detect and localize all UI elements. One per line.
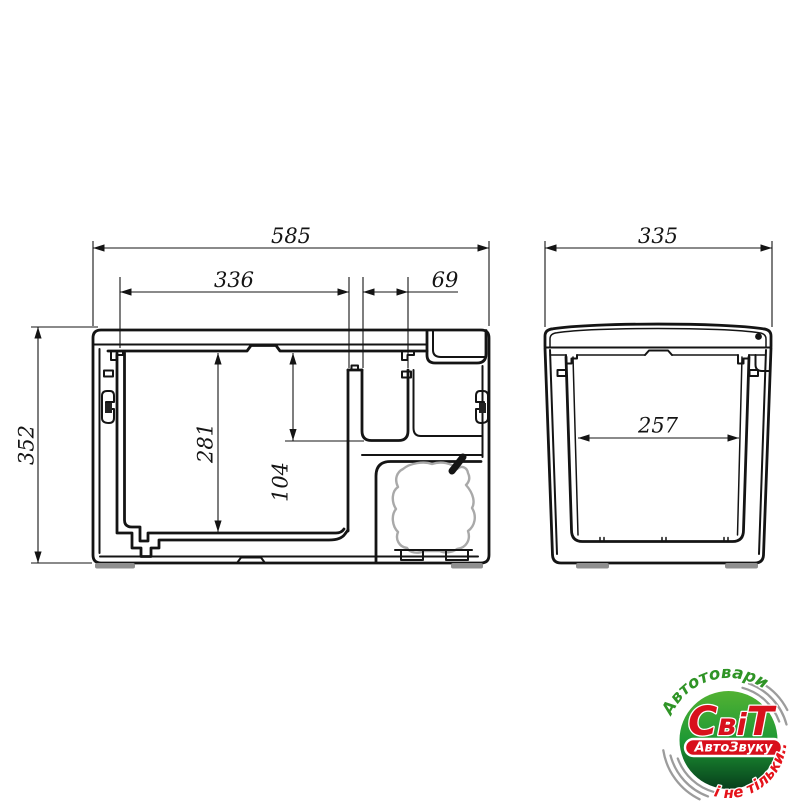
front-main-tub-inner (125, 353, 345, 541)
compressor-pipe (452, 457, 463, 471)
dim-label-overall-depth: 335 (638, 224, 678, 248)
logo: Автотовари СвіТ АвтоЗвуку і не тільки... (647, 631, 790, 802)
side-tub-inner-left (573, 357, 578, 535)
side-foot-left (576, 563, 609, 569)
front-liner-top (108, 346, 427, 352)
side-lid-inner (550, 328, 766, 346)
front-tab-left (104, 371, 113, 377)
side-tub-outline (566, 357, 749, 542)
logo-banner-text: АвтоЗвуку (694, 741, 774, 756)
extension-lines (31, 241, 772, 563)
side-hinge-bracket (756, 355, 771, 371)
front-foot-left (95, 563, 135, 569)
side-hinge-pin (755, 333, 762, 340)
side-foot-right (725, 563, 758, 569)
front-control-recess-inner (433, 331, 486, 358)
compressor-outline (393, 463, 475, 553)
dim-label-small-compartment-width: 69 (432, 268, 459, 292)
front-view (93, 330, 489, 569)
side-tab-right (750, 370, 759, 376)
side-latch-right (738, 355, 749, 364)
front-tab-right (402, 372, 411, 378)
dim-label-overall-width: 585 (271, 224, 311, 248)
side-tab-left (558, 370, 567, 376)
front-wall-clip-right-pin (479, 403, 486, 413)
technical-drawing-page: 585 336 69 352 281 104 335 257 Автотовар… (0, 0, 805, 805)
front-body-outline (93, 330, 489, 563)
front-small-compartment-outer (414, 370, 483, 436)
dim-label-small-compartment-depth: 104 (269, 462, 293, 502)
dim-label-inner-depth: 257 (637, 414, 679, 438)
front-control-recess (427, 331, 486, 364)
dim-label-overall-height: 352 (15, 425, 39, 465)
front-small-compartment (362, 370, 408, 441)
front-foot-right (451, 563, 483, 569)
side-rim-bump (645, 351, 672, 356)
front-wall-clip-left-pin (105, 403, 112, 413)
side-latch-left (566, 355, 577, 364)
fridge-dimension-drawing: 585 336 69 352 281 104 335 257 Автотовар… (0, 0, 805, 805)
front-main-tub-outer (117, 353, 348, 557)
side-lid-outline (545, 324, 771, 346)
side-tub-inner-right (738, 357, 743, 535)
dim-label-main-depth: 281 (194, 423, 218, 464)
side-view (545, 324, 771, 568)
logo-brand-middle: ві (717, 708, 747, 743)
dim-label-inner-width: 336 (214, 268, 254, 292)
